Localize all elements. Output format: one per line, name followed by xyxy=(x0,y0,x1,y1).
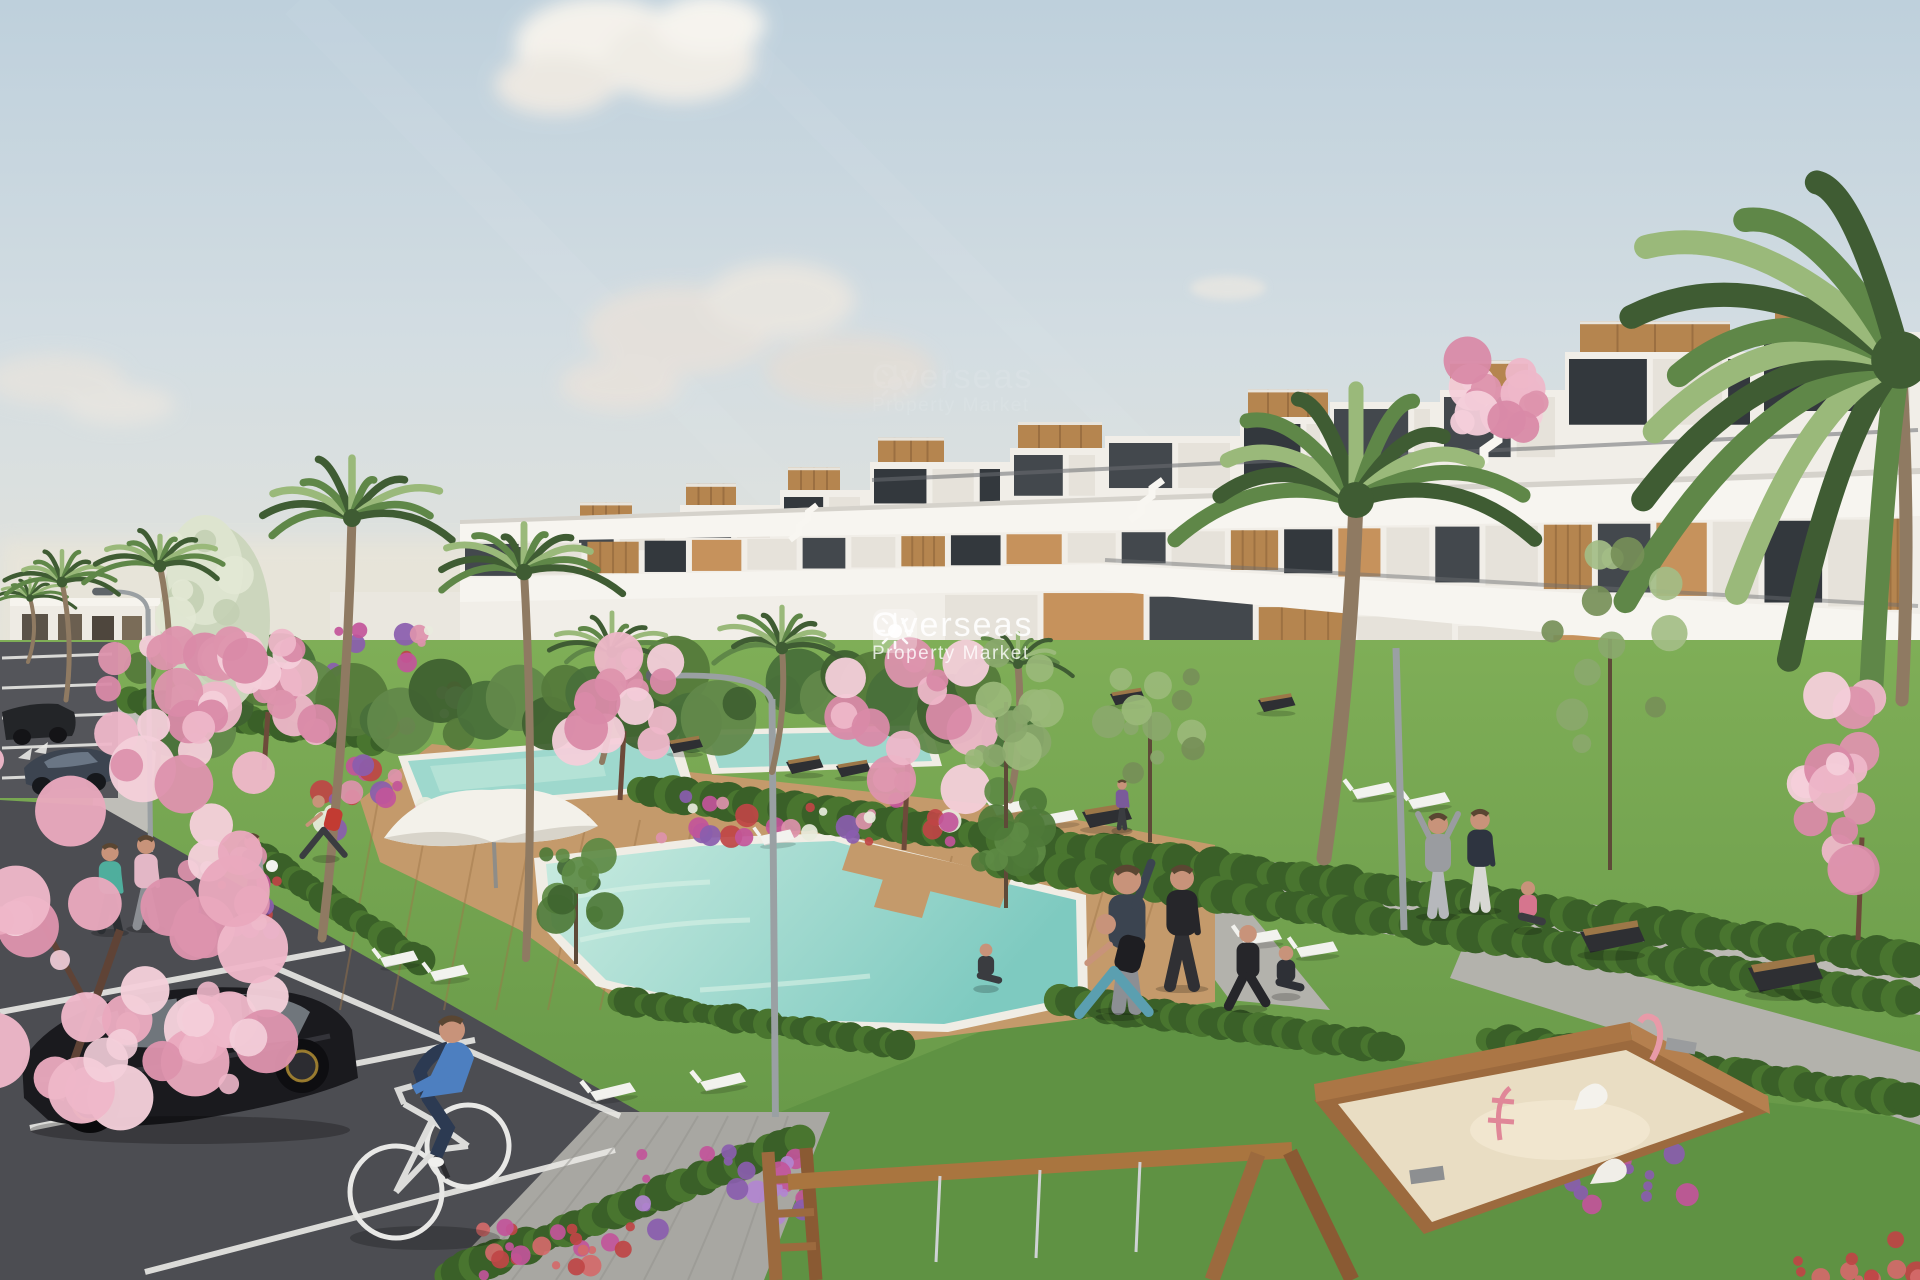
property-render: Overseas Property Market Overseas Proper… xyxy=(0,0,1920,1280)
scene-canvas xyxy=(0,0,1920,1280)
